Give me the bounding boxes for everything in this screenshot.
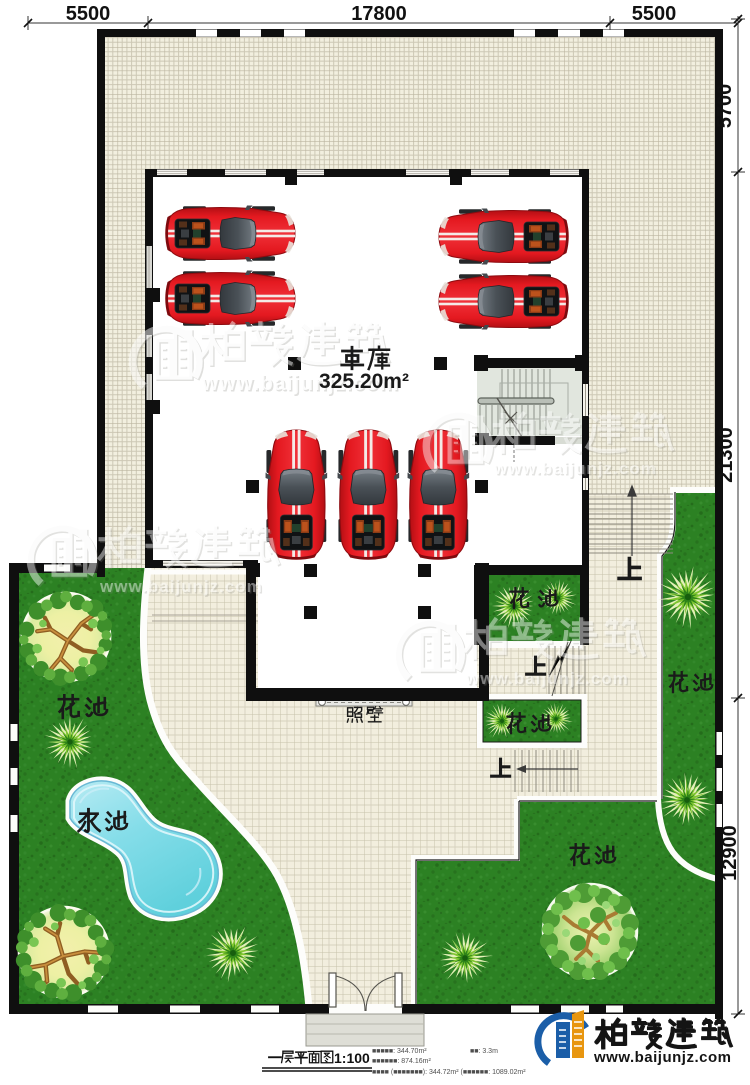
svg-text:■■■■■■: 874.16m²: ■■■■■■: 874.16m² (372, 1058, 431, 1065)
svg-text:21300: 21300 (715, 427, 737, 483)
svg-text:17800: 17800 (351, 3, 407, 25)
svg-text:12900: 12900 (719, 825, 741, 881)
svg-text:325.20m²: 325.20m² (319, 370, 409, 393)
svg-text:■■: 3.3m: ■■: 3.3m (470, 1048, 498, 1055)
svg-text:5700: 5700 (714, 84, 736, 129)
svg-text:1:100: 1:100 (334, 1050, 370, 1066)
svg-text:■■■■■: 344.70m²: ■■■■■: 344.70m² (372, 1048, 427, 1055)
svg-text:www.baijunjz.com: www.baijunjz.com (493, 459, 657, 478)
svg-text:www.baijunjz.com: www.baijunjz.com (593, 1049, 731, 1066)
svg-text:www.baijunjz.com: www.baijunjz.com (465, 669, 629, 688)
svg-text:■■■■ (■■■■■■■): 344.72m² (■■■■: ■■■■ (■■■■■■■): 344.72m² (■■■■■■: 1089.0… (372, 1069, 526, 1076)
svg-text:www.baijunjz.com: www.baijunjz.com (99, 577, 263, 596)
svg-text:5500: 5500 (66, 3, 111, 25)
svg-text:5500: 5500 (632, 3, 677, 25)
